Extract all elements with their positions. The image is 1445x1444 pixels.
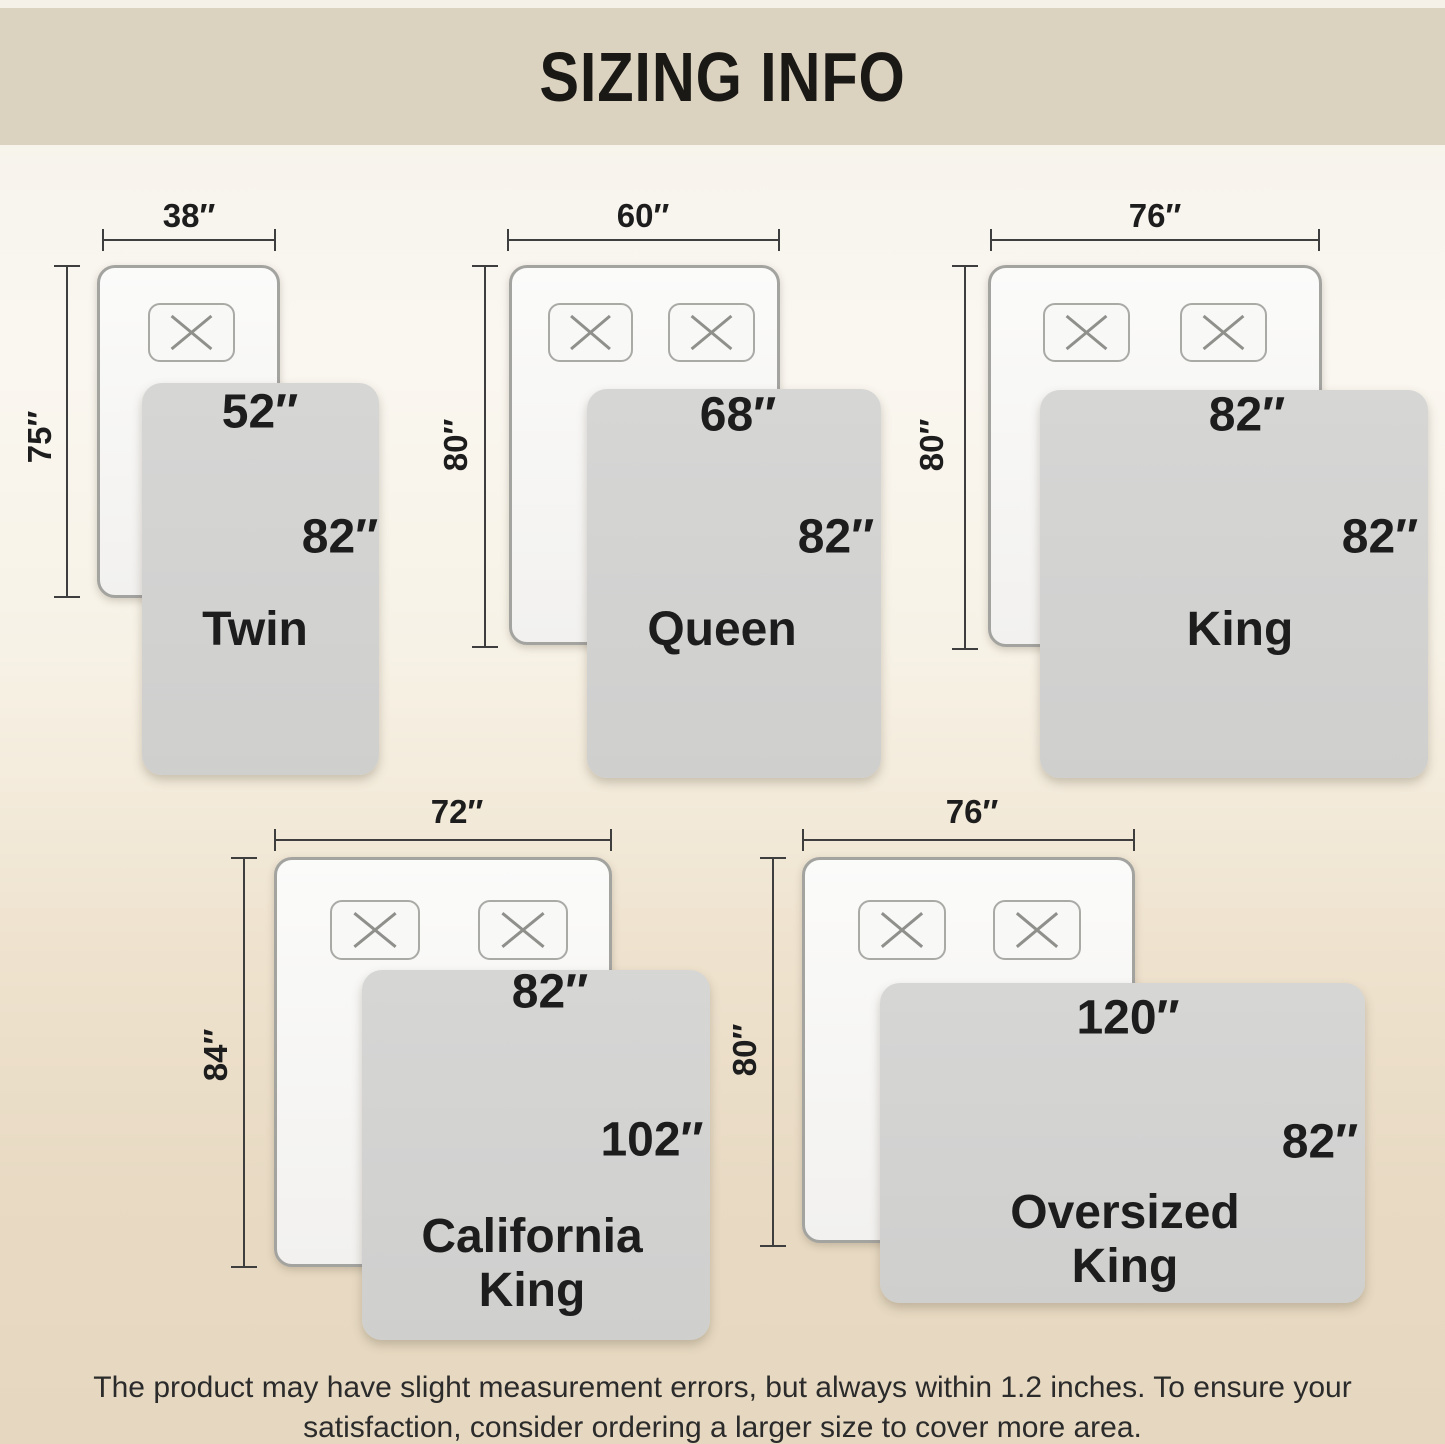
oversized-king-name-line-1: Oversized xyxy=(1010,1186,1239,1240)
california-king-width-dimension-line xyxy=(274,829,612,851)
queen-blanket xyxy=(587,389,881,778)
king-blanket-width-label: 82″ xyxy=(1209,388,1285,443)
pillow-x-icon xyxy=(150,305,233,360)
california-king-name-line-2: King xyxy=(421,1264,642,1318)
oversized-king-pillow-2 xyxy=(993,900,1081,960)
queen-name-line-1: Queen xyxy=(647,603,796,657)
twin-blanket-length-label: 82″ xyxy=(302,510,378,565)
pillow-x-icon xyxy=(860,902,944,958)
oversized-king-mattress-length-label: 80″ xyxy=(726,1024,764,1077)
queen-pillow-2 xyxy=(668,303,755,362)
king-pillow-2 xyxy=(1180,303,1267,362)
page-title: SIZING INFO xyxy=(539,37,905,117)
twin-pillow-1 xyxy=(148,303,235,362)
california-king-pillow-2 xyxy=(478,900,568,960)
footnote-line-1: The product may have slight measurement … xyxy=(0,1368,1445,1408)
twin-name-label: Twin xyxy=(202,603,308,657)
twin-blanket-width-label: 52″ xyxy=(222,385,298,440)
queen-blanket-length-label: 82″ xyxy=(798,510,874,565)
oversized-king-blanket-width-label: 120″ xyxy=(1076,991,1179,1046)
oversized-king-width-dimension-line xyxy=(802,829,1135,851)
footnote-line-2: satisfaction, consider ordering a larger… xyxy=(0,1408,1445,1444)
oversized-king-pillow-1 xyxy=(858,900,946,960)
twin-mattress-width-label: 38″ xyxy=(163,197,216,235)
pillow-x-icon xyxy=(1045,305,1128,360)
oversized-king-name-line-2: King xyxy=(1010,1240,1239,1294)
pillow-x-icon xyxy=(1182,305,1265,360)
california-king-blanket-width-label: 82″ xyxy=(512,965,588,1020)
pillow-x-icon xyxy=(670,305,753,360)
queen-pillow-1 xyxy=(548,303,633,362)
king-blanket-length-label: 82″ xyxy=(1342,510,1418,565)
california-king-name-label: CaliforniaKing xyxy=(421,1210,642,1318)
king-length-dimension-line xyxy=(952,265,978,650)
pillow-x-icon xyxy=(480,902,566,958)
california-king-mattress-width-label: 72″ xyxy=(431,793,484,831)
king-pillow-1 xyxy=(1043,303,1130,362)
king-name-line-1: King xyxy=(1187,603,1294,657)
header-band: SIZING INFO xyxy=(0,8,1445,145)
queen-mattress-width-label: 60″ xyxy=(617,197,670,235)
oversized-king-name-label: OversizedKing xyxy=(1010,1186,1239,1294)
pillow-x-icon xyxy=(995,902,1079,958)
queen-name-label: Queen xyxy=(647,603,796,657)
queen-mattress-length-label: 80″ xyxy=(437,419,475,472)
california-king-pillow-1 xyxy=(330,900,420,960)
king-mattress-width-label: 76″ xyxy=(1129,197,1182,235)
king-blanket xyxy=(1040,390,1428,778)
california-king-name-line-1: California xyxy=(421,1210,642,1264)
queen-blanket-width-label: 68″ xyxy=(700,388,776,443)
twin-blanket xyxy=(142,383,379,775)
california-king-blanket-length-label: 102″ xyxy=(600,1113,703,1168)
california-king-mattress-length-label: 84″ xyxy=(197,1029,235,1082)
king-mattress-length-label: 80″ xyxy=(913,419,951,472)
oversized-king-blanket-length-label: 82″ xyxy=(1282,1115,1358,1170)
footnote: The product may have slight measurement … xyxy=(0,1368,1445,1444)
queen-length-dimension-line xyxy=(472,265,498,648)
pillow-x-icon xyxy=(332,902,418,958)
sizing-info-infographic: SIZING INFO 38″75″52″82″Twin60″80″68″82″… xyxy=(0,0,1445,1444)
twin-name-line-1: Twin xyxy=(202,603,308,657)
twin-mattress-length-label: 75″ xyxy=(21,411,59,464)
oversized-king-mattress-width-label: 76″ xyxy=(946,793,999,831)
pillow-x-icon xyxy=(550,305,631,360)
king-name-label: King xyxy=(1187,603,1294,657)
